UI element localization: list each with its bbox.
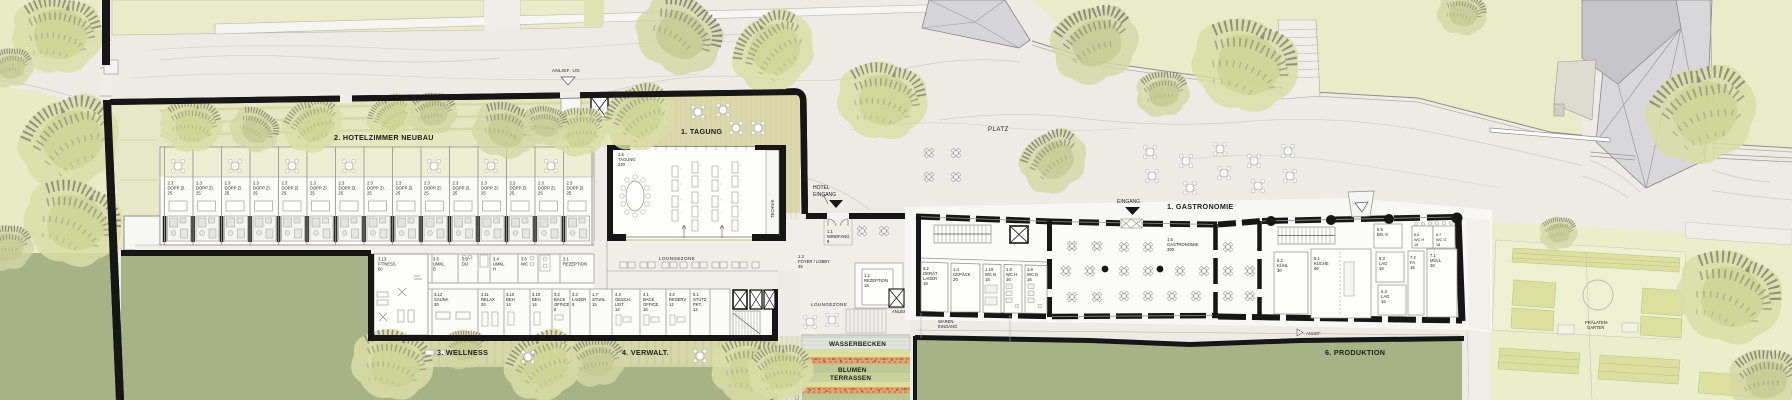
- svg-text:30: 30: [434, 302, 439, 307]
- svg-text:16: 16: [1379, 266, 1384, 271]
- svg-text:16: 16: [1381, 299, 1386, 304]
- svg-text:30: 30: [1430, 263, 1435, 268]
- svg-text:WC G: WC G: [1436, 238, 1446, 242]
- svg-text:EINGANG: EINGANG: [938, 324, 957, 329]
- svg-text:BLUMEN: BLUMEN: [838, 367, 867, 374]
- svg-text:12: 12: [615, 307, 620, 312]
- svg-text:D: D: [433, 267, 436, 272]
- svg-text:WINDFANG: WINDFANG: [827, 234, 850, 239]
- svg-text:REZEPTION: REZEPTION: [563, 262, 587, 267]
- svg-text:DU: DU: [462, 262, 468, 267]
- svg-text:30: 30: [1277, 268, 1282, 273]
- svg-text:60: 60: [1314, 266, 1319, 271]
- svg-text:1. TAGUNG: 1. TAGUNG: [681, 127, 722, 136]
- svg-text:16: 16: [1006, 277, 1011, 282]
- svg-text:16: 16: [1027, 277, 1032, 282]
- svg-text:14: 14: [532, 302, 537, 307]
- svg-text:15: 15: [592, 302, 597, 307]
- svg-text:TERRASSEN: TERRASSEN: [830, 375, 871, 382]
- svg-text:HOTEL: HOTEL: [813, 185, 830, 191]
- svg-text:6.6: 6.6: [1414, 233, 1419, 237]
- svg-text:TECHNIK: TECHNIK: [770, 199, 775, 218]
- svg-text:18: 18: [985, 277, 990, 282]
- svg-text:16: 16: [1414, 243, 1418, 247]
- svg-text:12: 12: [693, 307, 698, 312]
- svg-text:WASSERBECKEN: WASSERBECKEN: [829, 341, 886, 348]
- svg-text:60: 60: [378, 267, 383, 272]
- svg-text:FOYER / LOBBY: FOYER / LOBBY: [798, 259, 830, 264]
- svg-text:GARTEN: GARTEN: [1587, 325, 1604, 330]
- svg-text:LOUNGEZONE: LOUNGEZONE: [811, 302, 847, 307]
- svg-text:14: 14: [506, 302, 511, 307]
- svg-text:16: 16: [643, 307, 648, 312]
- svg-text:18: 18: [1436, 243, 1440, 247]
- svg-text:2. HOTELZIMMER NEUBAU: 2. HOTELZIMMER NEUBAU: [334, 133, 434, 142]
- svg-text:6.7: 6.7: [1436, 233, 1441, 237]
- svg-text:45: 45: [798, 264, 803, 269]
- svg-text:6. PRODUKTION: 6. PRODUKTION: [1325, 348, 1385, 357]
- svg-text:15: 15: [1410, 265, 1415, 270]
- svg-text:18: 18: [864, 283, 869, 288]
- svg-text:20: 20: [481, 302, 486, 307]
- svg-text:1. GASTRONOMIE: 1. GASTRONOMIE: [1167, 202, 1234, 211]
- svg-text:20: 20: [953, 277, 958, 282]
- svg-text:WC: WC: [521, 262, 528, 267]
- svg-text:18: 18: [923, 281, 928, 286]
- svg-text:H: H: [493, 267, 496, 272]
- svg-text:12: 12: [669, 302, 674, 307]
- svg-text:300: 300: [1167, 247, 1175, 252]
- svg-text:ANLIEF. UG: ANLIEF. UG: [552, 68, 580, 73]
- svg-text:BO. 8: BO. 8: [1377, 232, 1388, 237]
- svg-text:PLATZ: PLATZ: [988, 127, 1009, 133]
- svg-text:3. WELLNESS: 3. WELLNESS: [437, 348, 488, 357]
- svg-text:LOUNGEZONE: LOUNGEZONE: [659, 256, 695, 261]
- svg-text:EINGANG: EINGANG: [1117, 199, 1140, 205]
- svg-text:WC H: WC H: [1414, 238, 1424, 242]
- svg-text:4. VERWALT.: 4. VERWALT.: [622, 348, 669, 357]
- svg-text:220: 220: [618, 162, 626, 167]
